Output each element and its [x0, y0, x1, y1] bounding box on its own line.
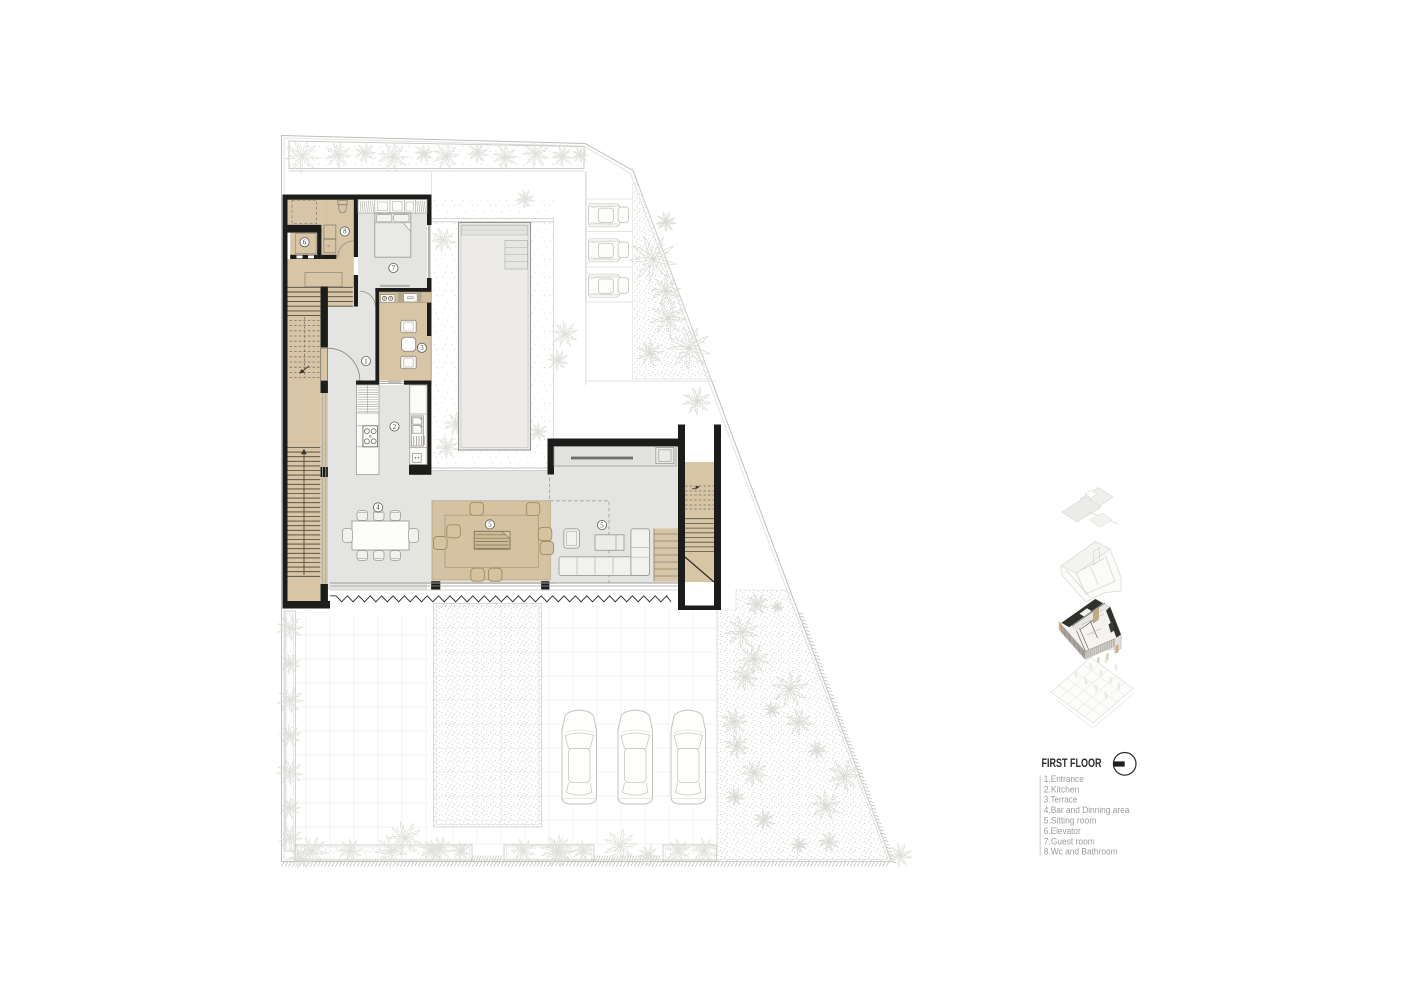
svg-text:6: 6	[303, 240, 307, 247]
svg-text:1: 1	[364, 358, 367, 365]
svg-text:2: 2	[393, 424, 397, 431]
svg-text:7.Guest room: 7.Guest room	[1044, 836, 1095, 847]
svg-text:8.Wc and Bathroom: 8.Wc and Bathroom	[1044, 847, 1118, 858]
svg-text:5.Sitting room: 5.Sitting room	[1044, 816, 1097, 827]
svg-text:FIRST FLOOR: FIRST FLOOR	[1042, 758, 1103, 770]
svg-text:3.Terrace: 3.Terrace	[1044, 795, 1078, 806]
svg-text:6.Elevator: 6.Elevator	[1044, 826, 1082, 837]
svg-text:4: 4	[376, 505, 380, 512]
svg-text:5: 5	[600, 522, 604, 529]
svg-text:1.Entrance: 1.Entrance	[1044, 774, 1084, 785]
svg-text:5: 5	[488, 522, 492, 529]
svg-text:8: 8	[343, 229, 347, 236]
svg-text:7: 7	[392, 265, 396, 272]
svg-text:4.Bar and Dinning area: 4.Bar and Dinning area	[1044, 805, 1130, 816]
svg-text:2.Kitchen: 2.Kitchen	[1044, 784, 1080, 795]
svg-text:3: 3	[420, 345, 424, 352]
